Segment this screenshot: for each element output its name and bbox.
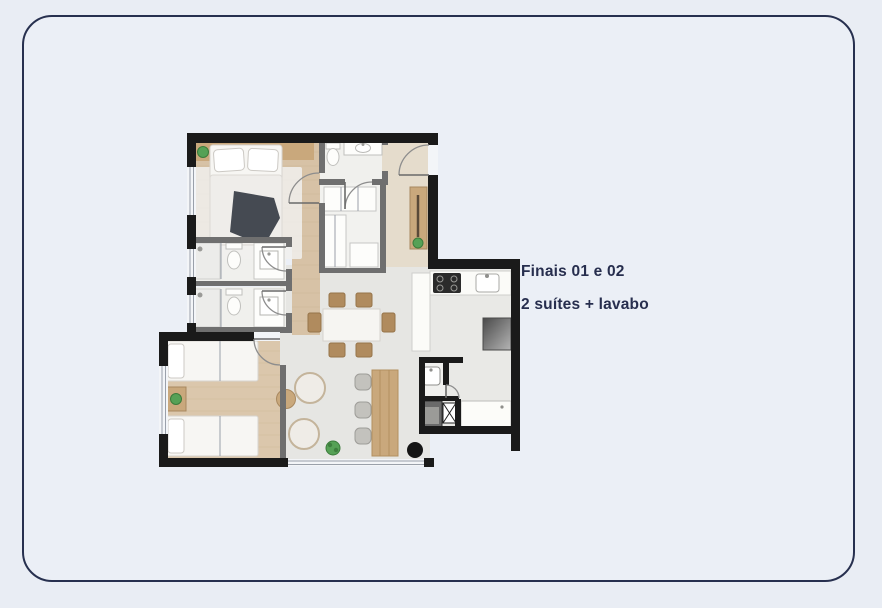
faucet xyxy=(362,143,365,146)
plan-title: Finais 01 e 02 xyxy=(521,263,741,281)
faucet xyxy=(485,274,489,278)
plant xyxy=(198,147,209,158)
floorplan-image xyxy=(154,122,526,474)
round-table-black xyxy=(407,442,423,458)
closet-unit xyxy=(350,243,378,267)
dining-chair xyxy=(356,293,372,307)
toilet xyxy=(228,297,241,315)
stool xyxy=(355,374,371,390)
dining-chair xyxy=(308,313,321,332)
window xyxy=(159,366,168,434)
plant xyxy=(171,394,182,405)
plant xyxy=(413,238,423,248)
washing-machine-door xyxy=(424,407,439,424)
window xyxy=(187,295,196,323)
dining-chair xyxy=(329,343,345,357)
armchair xyxy=(289,419,319,449)
window xyxy=(187,249,196,277)
page: { "page": { "background": "#e9edf4" }, "… xyxy=(0,0,882,608)
dining-chair xyxy=(382,313,395,332)
bench-counter xyxy=(372,370,398,456)
stool xyxy=(355,428,371,444)
plan-subtitle: 2 suítes + lavabo xyxy=(521,296,741,314)
sliding-glass-door xyxy=(288,459,424,466)
plan-caption: Finais 01 e 02 2 suítes + lavabo xyxy=(521,263,741,314)
pillow xyxy=(168,344,184,378)
dining-chair xyxy=(356,343,372,357)
toilet-tank xyxy=(226,243,242,249)
armchair xyxy=(295,373,325,403)
fridge xyxy=(483,318,511,350)
plant xyxy=(326,441,340,455)
toilet-tank xyxy=(226,289,242,295)
toilet xyxy=(327,149,339,166)
dining-chair xyxy=(329,293,345,307)
stool xyxy=(355,402,371,418)
pillow xyxy=(247,148,278,172)
pillow xyxy=(168,419,184,453)
kitchen-island xyxy=(412,273,430,351)
floorplan-card: Finais 01 e 02 2 suítes + lavabo xyxy=(22,15,855,582)
pillow xyxy=(213,148,244,172)
laundry-counter xyxy=(461,401,511,428)
toilet xyxy=(228,251,241,269)
closet-unit xyxy=(324,187,376,211)
window xyxy=(187,167,196,215)
dresser xyxy=(282,143,314,160)
dining-table xyxy=(323,309,380,341)
